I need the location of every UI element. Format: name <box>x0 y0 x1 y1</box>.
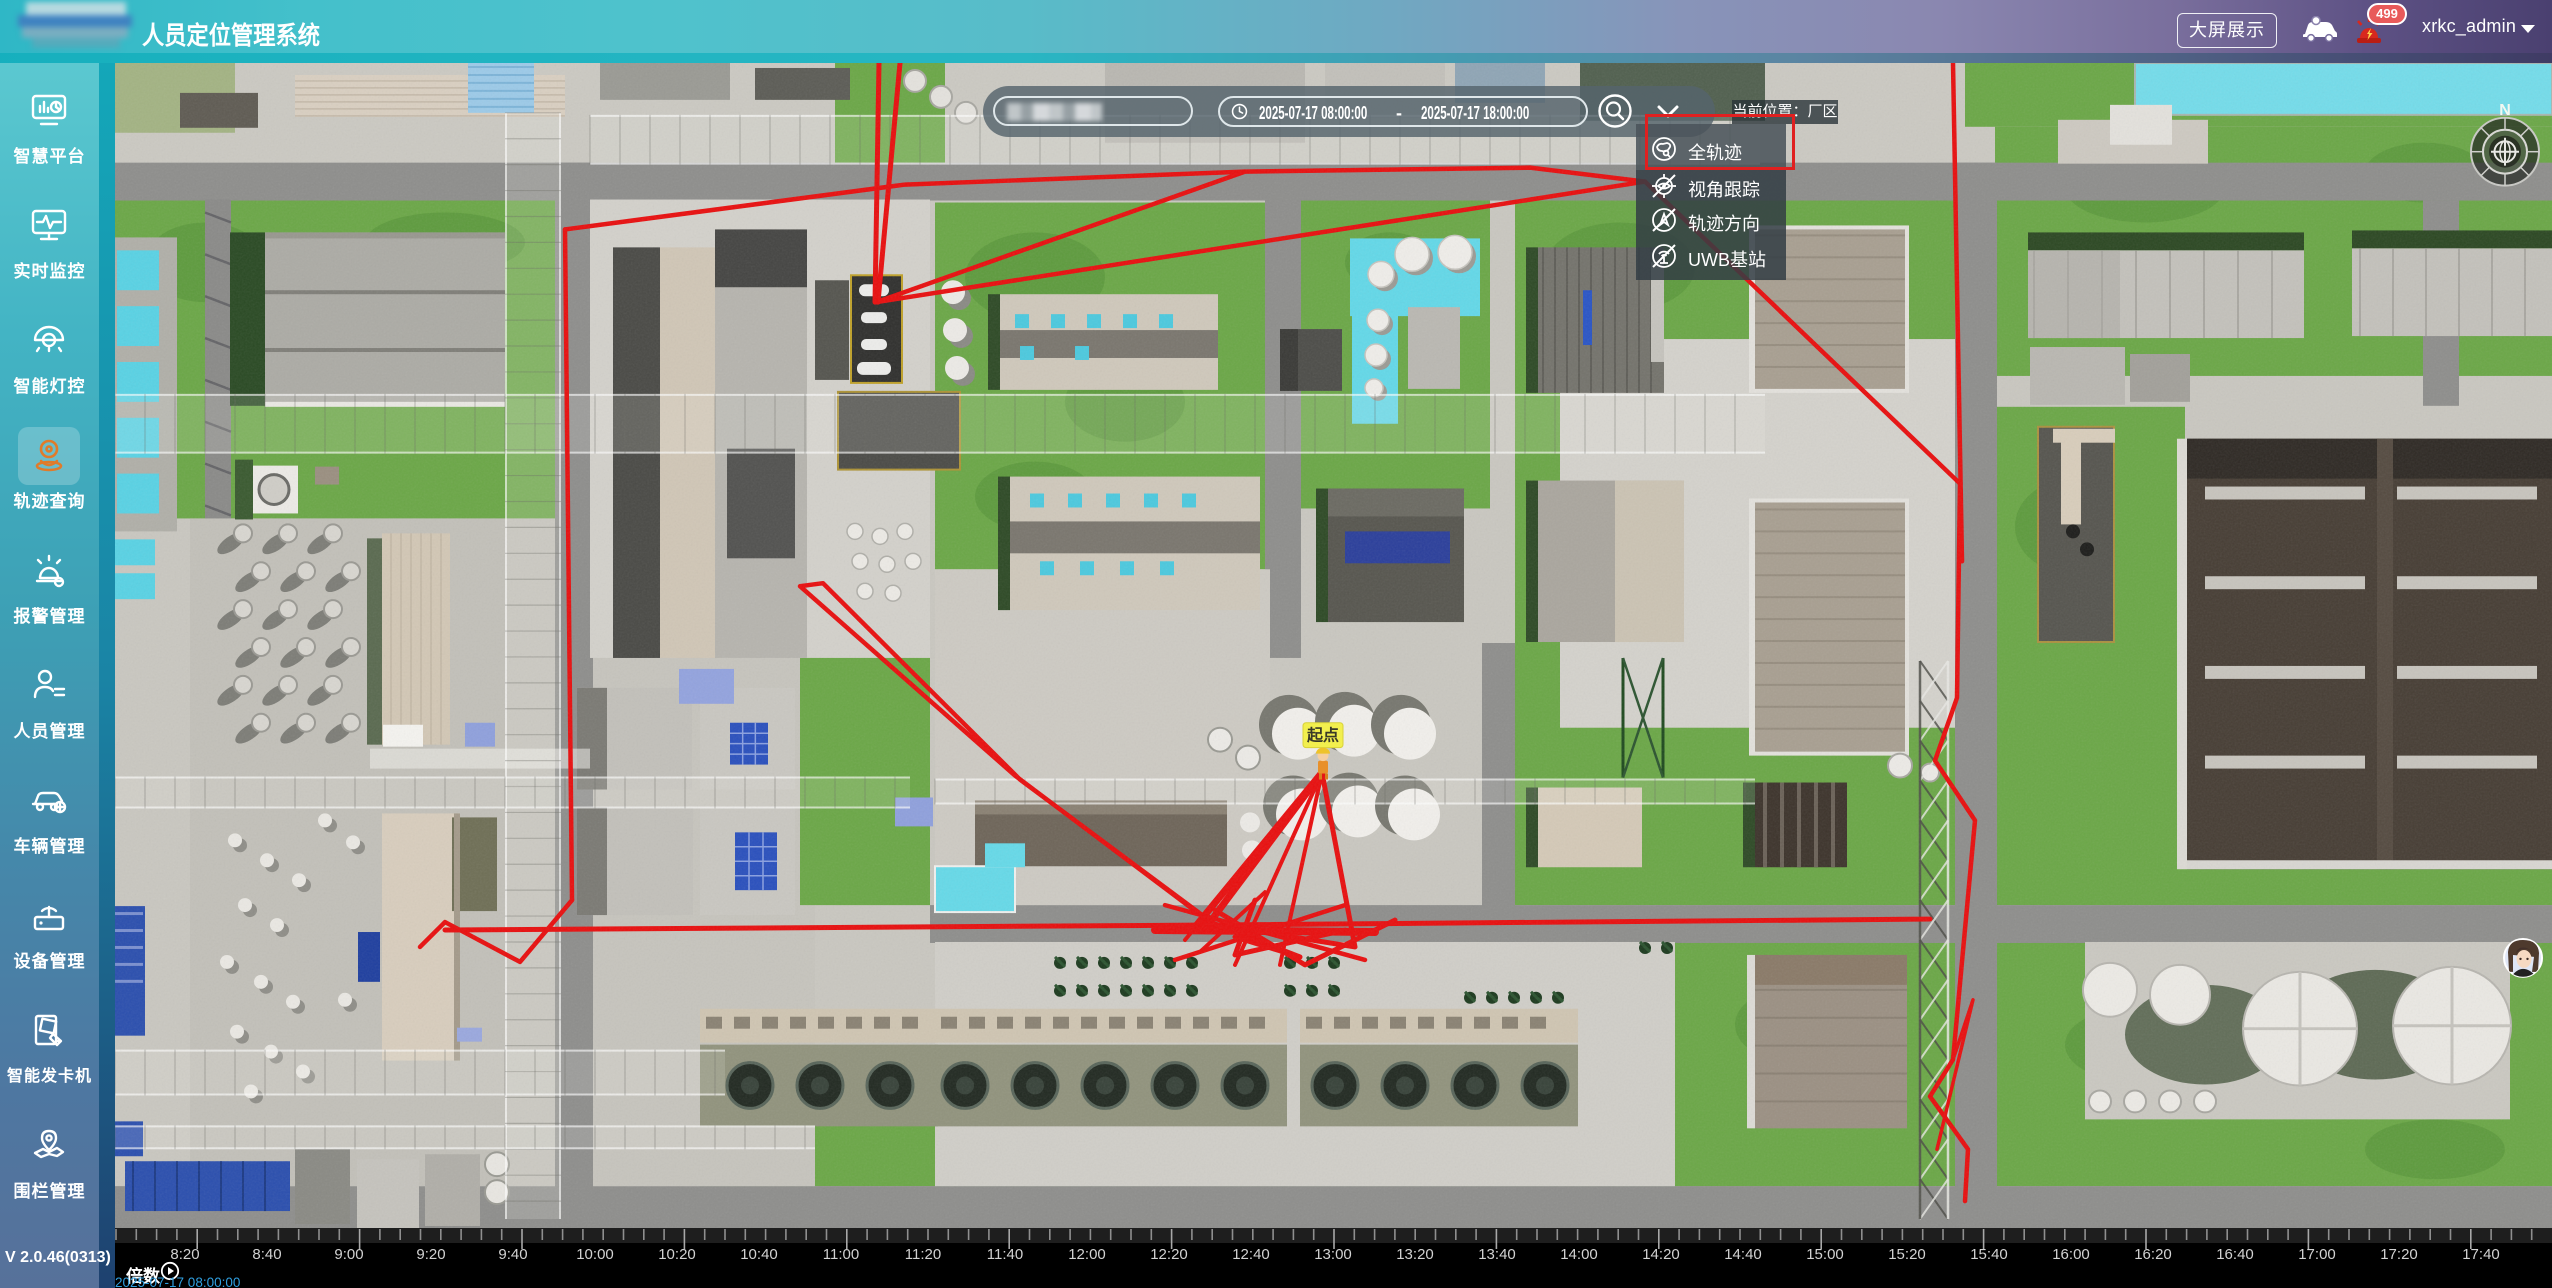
svg-text:起点: 起点 <box>1306 726 1339 745</box>
svg-text:N: N <box>2499 102 2511 119</box>
